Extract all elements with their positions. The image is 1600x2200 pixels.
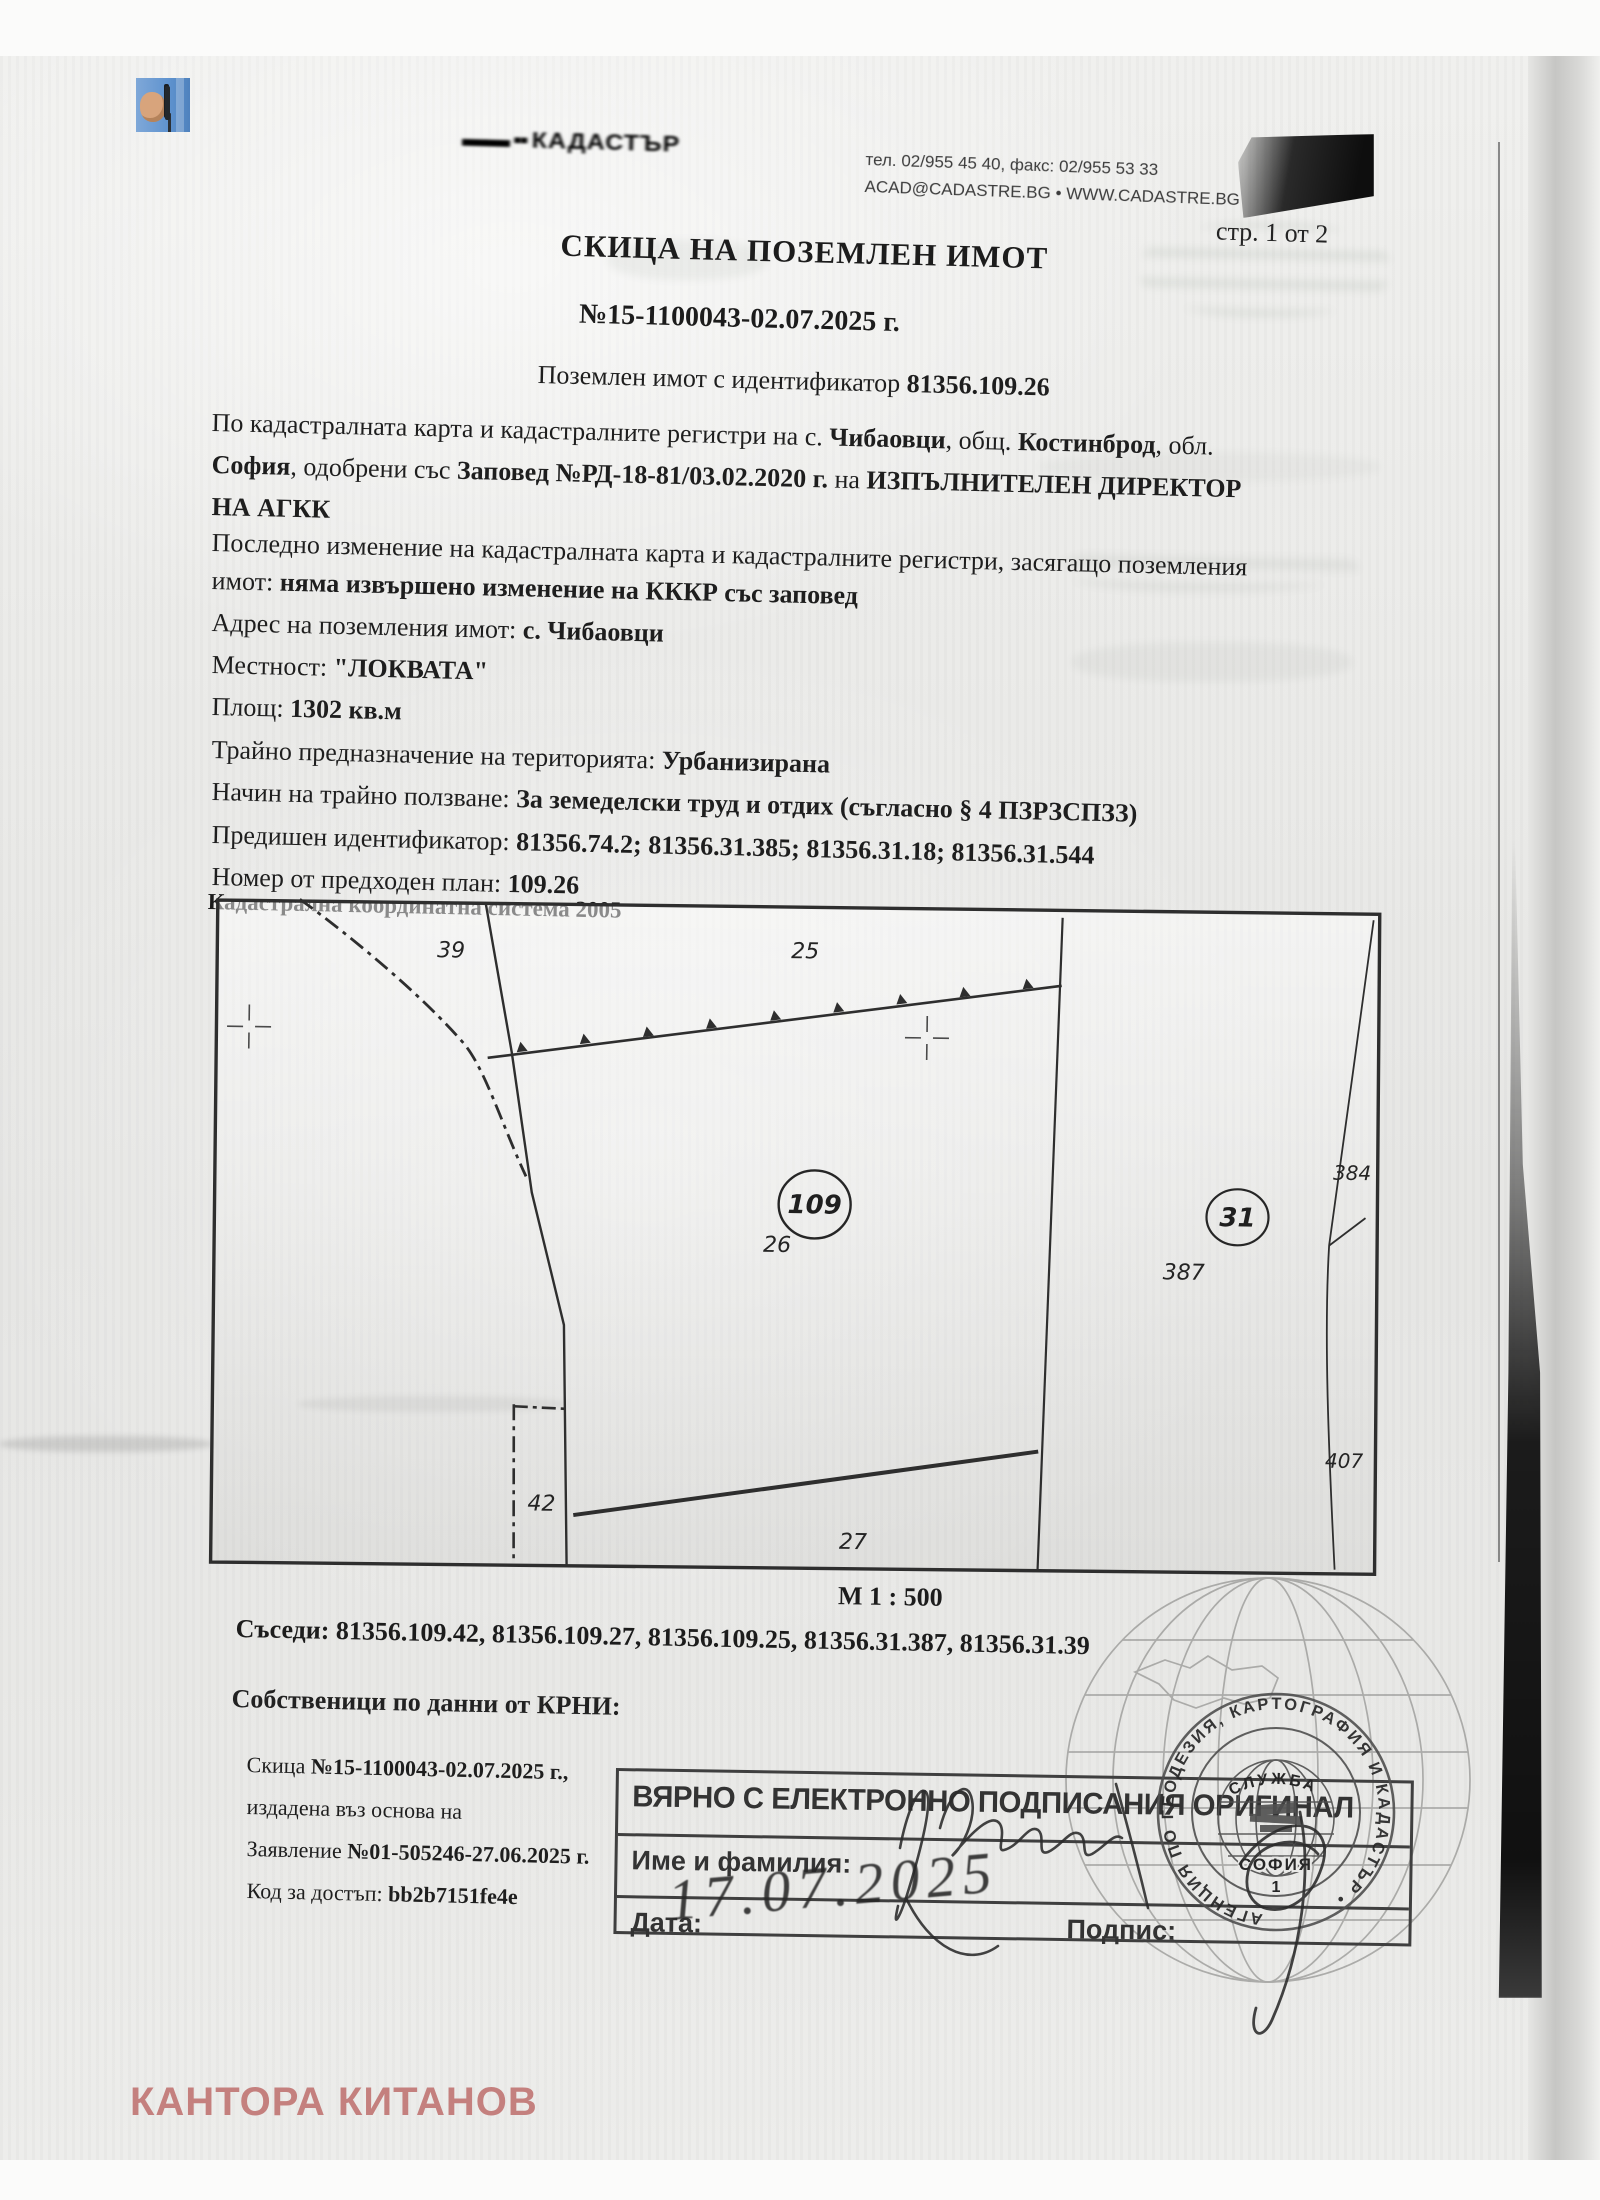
handwritten-date: 17.07.2025 bbox=[665, 1839, 1000, 1933]
parcel-42-label: 42 bbox=[527, 1491, 555, 1516]
issued-line: издадена въз основа на bbox=[246, 1794, 462, 1825]
body-line-3: НА АГКК bbox=[211, 492, 330, 525]
parcel-31-number: 31 bbox=[1219, 1203, 1256, 1234]
photo-highlight bbox=[176, 78, 184, 132]
parcel-25-label: 25 bbox=[791, 939, 819, 964]
handwriting-layer: 17.07.2025 bbox=[600, 1720, 1420, 2040]
page-number: стр. 1 от 2 bbox=[1216, 216, 1329, 249]
keys-shape bbox=[165, 86, 170, 120]
parcel-27-label: 27 bbox=[839, 1530, 867, 1555]
hand-shape bbox=[140, 92, 166, 122]
parcel-407-label: 407 bbox=[1325, 1449, 1364, 1474]
signature-scribble bbox=[1240, 1812, 1325, 2033]
area-line: Площ: 1302 кв.м bbox=[211, 692, 402, 726]
parcel-387-label: 387 bbox=[1163, 1260, 1205, 1286]
scan-artifact bbox=[1072, 642, 1352, 682]
parcel-109-number: 109 bbox=[787, 1190, 842, 1221]
cadastral-map: 109 26 31 387 39 25 384 407 42 27 bbox=[204, 888, 1394, 1604]
scan-artifact bbox=[0, 1436, 212, 1452]
kantora-watermark: КАНТОРА КИТАНОВ bbox=[130, 2080, 538, 2125]
hand-with-keys-photo bbox=[136, 78, 190, 132]
parcel-384-label: 384 bbox=[1333, 1161, 1372, 1186]
map-scale: М 1 : 500 bbox=[838, 1581, 943, 1613]
parcel-39-label: 39 bbox=[437, 938, 465, 963]
map-outer-border bbox=[209, 898, 1384, 1578]
parcel-26-label: 26 bbox=[763, 1233, 791, 1258]
scan-edge-line bbox=[1498, 142, 1500, 1562]
